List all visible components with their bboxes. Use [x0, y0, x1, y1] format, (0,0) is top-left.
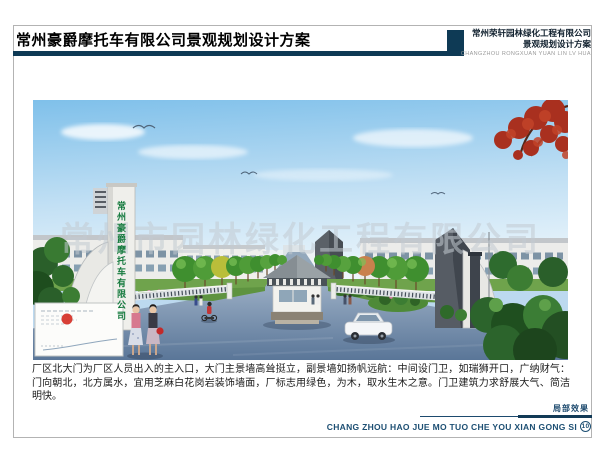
- caption-label: 局部效果: [553, 403, 589, 414]
- page-title: 常州豪爵摩托车有限公司景观规划设计方案: [16, 29, 311, 50]
- page-number-badge: 10: [580, 421, 591, 432]
- gate-sign-text: 常州豪爵摩托车有限公司: [110, 192, 132, 330]
- rendering-image: 常州市园林绿化工程有限公司 常州豪爵摩托车有限公司: [33, 100, 568, 360]
- company-subtitle: 景观规划设计方案: [461, 39, 591, 50]
- company-pinyin: CHANGZHOU RONGXUAN YUAN LIN LV HUA: [461, 51, 591, 57]
- presentation-page: 常州豪爵摩托车有限公司景观规划设计方案 常州荣轩园林绿化工程有限公司 景观规划设…: [0, 0, 600, 463]
- footer-rule: [420, 415, 592, 419]
- footer-pinyin: CHANG ZHOU HAO JUE MO TUO CHE YOU XIAN G…: [327, 422, 577, 432]
- title-underline-bar: [13, 51, 447, 56]
- footer-pinyin-row: CHANG ZHOU HAO JUE MO TUO CHE YOU XIAN G…: [327, 421, 591, 432]
- header-company-block: 常州荣轩园林绿化工程有限公司 景观规划设计方案 CHANGZHOU RONGXU…: [461, 28, 591, 57]
- company-name: 常州荣轩园林绿化工程有限公司: [461, 28, 591, 39]
- description-paragraph: 厂区北大门为厂区人员出入的主入口，大门主景墙高耸挺立，副景墙如扬帆远航：中间设门…: [32, 363, 570, 404]
